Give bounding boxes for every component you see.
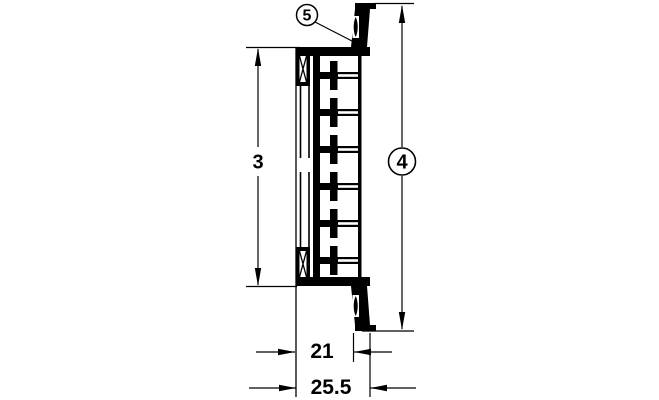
dimension-21: 21 [256, 333, 392, 363]
louver-fins [320, 61, 361, 275]
top-flange-hook [355, 3, 376, 9]
bottom-flange [351, 286, 376, 331]
dim255-arrow-right [370, 385, 387, 391]
louver-cap [330, 135, 338, 164]
dim255-value: 25.5 [311, 376, 352, 399]
louver-cap [330, 172, 338, 201]
rung-slot [338, 111, 358, 114]
louver-cap [330, 61, 338, 90]
rung-slot [338, 259, 358, 262]
rung-slot [338, 148, 358, 151]
dimension-4: 4 [362, 4, 416, 332]
callout-5: 5 [297, 5, 353, 42]
rung-slot [338, 222, 358, 225]
dim4-arrow-down [399, 312, 405, 330]
dimension-3: 3 [245, 48, 301, 287]
rung-slot [338, 74, 358, 77]
dim255-arrow-left [279, 385, 296, 391]
dim3-arrow-up [255, 48, 261, 66]
insert-strip [301, 86, 310, 247]
rung-slot [338, 185, 358, 188]
profile-right-face [358, 56, 362, 277]
callout-label-3: 3 [252, 152, 263, 174]
profile-cross-section-drawing: 3 4 5 21 25.5 [0, 0, 659, 400]
bottom-flange-hook [355, 325, 376, 331]
dim21-arrow-left [278, 349, 295, 355]
louver-cap [330, 246, 338, 275]
callout5-leader-line [315, 22, 352, 41]
drawing-canvas: 3 4 5 21 25.5 [0, 0, 659, 400]
dim3-arrow-down [255, 268, 261, 286]
callout-label-5: 5 [303, 8, 312, 25]
dim21-arrow-right [354, 349, 371, 355]
callout-label-4: 4 [396, 152, 408, 174]
dim4-arrow-up [399, 5, 405, 23]
dim21-value: 21 [310, 340, 334, 363]
profile-web [313, 56, 320, 277]
top-flange [351, 3, 376, 47]
louver-cap [330, 98, 338, 127]
louver-cap [330, 209, 338, 238]
